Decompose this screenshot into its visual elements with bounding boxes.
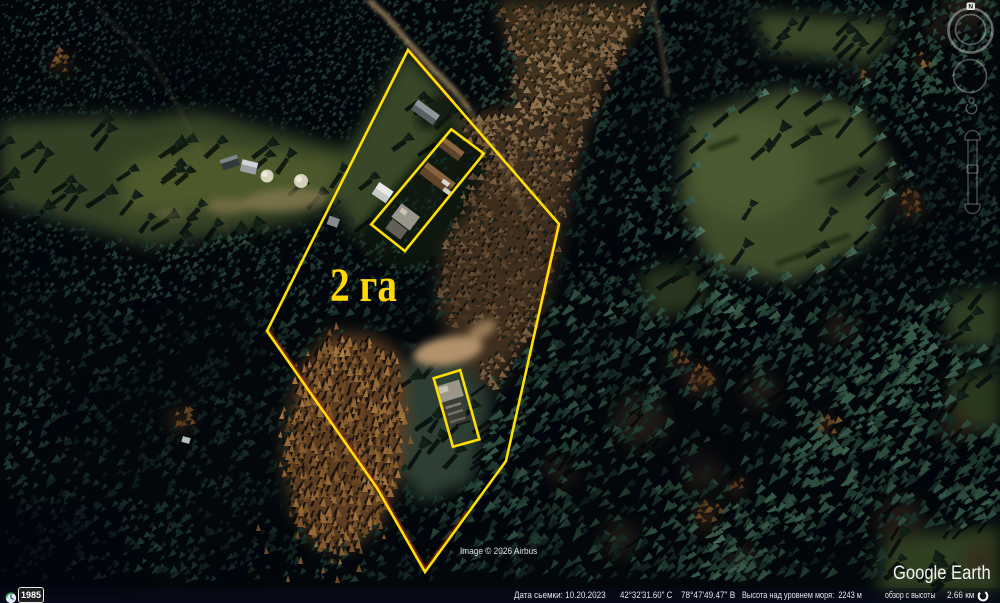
svg-text:2 га: 2 га: [330, 259, 397, 312]
svg-text:N: N: [968, 4, 973, 11]
